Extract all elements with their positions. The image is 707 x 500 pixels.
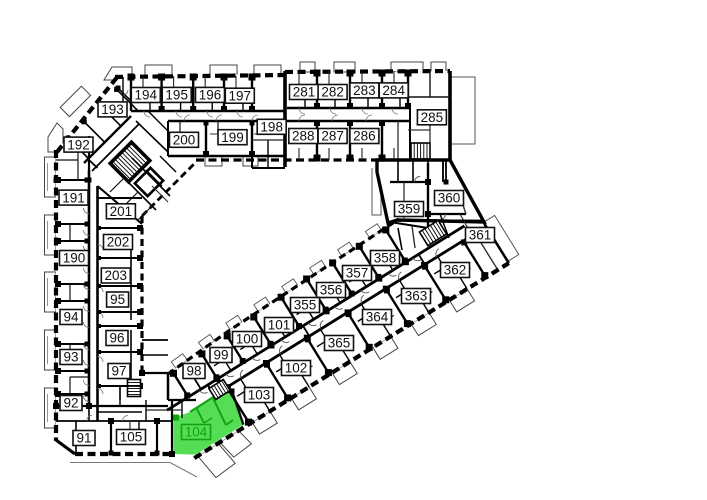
svg-text:94: 94 (63, 310, 79, 325)
svg-text:202: 202 (107, 235, 130, 250)
svg-text:199: 199 (221, 130, 244, 145)
svg-text:194: 194 (135, 88, 158, 103)
svg-text:282: 282 (321, 85, 344, 100)
svg-text:191: 191 (62, 190, 85, 205)
svg-text:101: 101 (268, 318, 291, 333)
svg-text:100: 100 (236, 332, 259, 347)
svg-text:362: 362 (444, 263, 467, 278)
svg-text:364: 364 (366, 310, 389, 325)
svg-text:102: 102 (285, 361, 308, 376)
svg-text:284: 284 (382, 83, 405, 98)
svg-text:197: 197 (229, 88, 252, 103)
svg-text:357: 357 (346, 266, 369, 281)
svg-text:288: 288 (292, 129, 315, 144)
svg-text:95: 95 (110, 292, 125, 307)
svg-text:92: 92 (63, 396, 78, 411)
svg-text:359: 359 (398, 202, 421, 217)
svg-text:105: 105 (120, 430, 143, 445)
svg-text:360: 360 (438, 191, 461, 206)
svg-text:283: 283 (353, 83, 376, 98)
svg-text:201: 201 (110, 204, 133, 219)
svg-text:190: 190 (63, 251, 86, 266)
svg-text:192: 192 (67, 137, 90, 152)
svg-text:97: 97 (111, 364, 126, 379)
svg-text:193: 193 (101, 102, 124, 117)
svg-text:203: 203 (105, 268, 128, 283)
svg-text:196: 196 (199, 88, 222, 103)
svg-text:361: 361 (469, 228, 492, 243)
svg-text:198: 198 (260, 120, 283, 135)
svg-text:281: 281 (293, 85, 316, 100)
svg-text:96: 96 (109, 331, 124, 346)
svg-text:358: 358 (374, 251, 397, 266)
svg-text:98: 98 (186, 364, 201, 379)
svg-text:356: 356 (320, 283, 343, 298)
svg-text:104: 104 (185, 425, 208, 440)
svg-text:285: 285 (421, 110, 444, 125)
svg-text:365: 365 (328, 336, 351, 351)
svg-text:200: 200 (173, 133, 196, 148)
svg-text:103: 103 (248, 388, 271, 403)
svg-text:195: 195 (165, 88, 188, 103)
svg-text:286: 286 (353, 129, 376, 144)
svg-text:91: 91 (76, 431, 91, 446)
svg-text:355: 355 (294, 298, 317, 313)
svg-text:287: 287 (321, 129, 344, 144)
svg-text:93: 93 (63, 350, 78, 365)
svg-text:99: 99 (213, 348, 228, 363)
svg-text:363: 363 (405, 289, 428, 304)
